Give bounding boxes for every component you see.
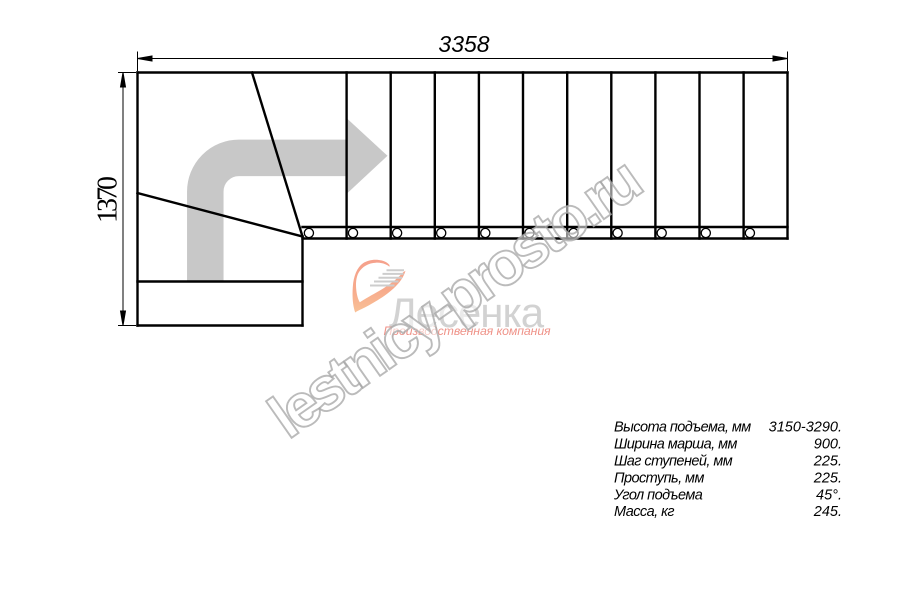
svg-text:225.: 225. [813, 454, 842, 470]
svg-text:225.: 225. [813, 470, 842, 486]
svg-text:1370: 1370 [93, 177, 124, 223]
svg-text:900.: 900. [814, 437, 842, 453]
svg-text:Угол подъема: Угол подъема [613, 487, 703, 503]
svg-text:3150-3290.: 3150-3290. [769, 420, 842, 436]
svg-text:Высота подъема, мм: Высота подъема, мм [614, 420, 751, 436]
svg-text:Ширина марша, мм: Ширина марша, мм [614, 437, 738, 453]
svg-text:3358: 3358 [438, 31, 489, 57]
svg-text:45°.: 45°. [816, 487, 842, 503]
svg-text:Проступь, мм: Проступь, мм [614, 470, 704, 486]
svg-text:Масса, кг: Масса, кг [614, 504, 674, 520]
svg-text:245.: 245. [813, 504, 842, 520]
svg-text:Шаг ступеней, мм: Шаг ступеней, мм [614, 454, 733, 470]
